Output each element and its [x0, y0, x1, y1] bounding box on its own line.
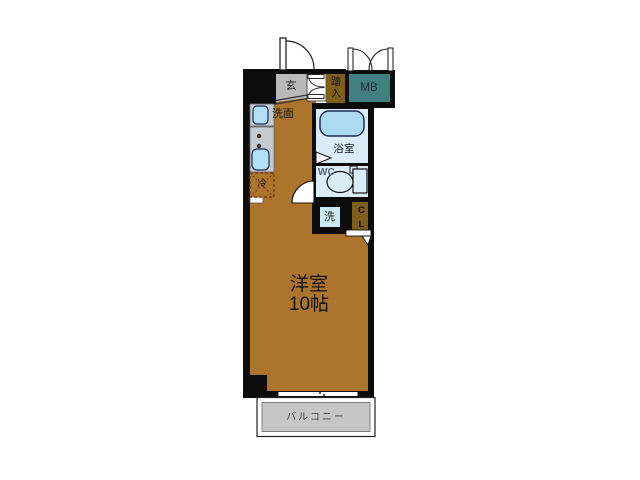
main-room-name: 洋室: [250, 275, 368, 295]
counter-edge: [250, 197, 263, 203]
entry-door-leaf: [280, 38, 286, 70]
wc-label: WC: [318, 167, 335, 179]
entry-door-arc: [286, 41, 314, 69]
refrigerator-label: 冷: [255, 179, 269, 191]
stove-burner-1: [257, 134, 261, 138]
stove-burner-2: [257, 144, 261, 148]
main-room-size: 10帖: [250, 295, 368, 315]
wall-bath-wc-divider: [316, 163, 368, 166]
washstand-label: 洗面: [272, 108, 294, 121]
main-room-label: 洋室 10帖: [250, 275, 368, 315]
kitchen-sink: [252, 149, 269, 170]
inner-door-leaf-top: [308, 75, 324, 79]
bathroom-label: 浴室: [328, 143, 360, 155]
wall-bathroom-top: [312, 103, 374, 109]
floorplan-svg: [0, 0, 640, 480]
bathtub: [320, 111, 364, 136]
fumikomi-label: 踏入: [328, 76, 340, 100]
wall-left: [243, 69, 250, 398]
laundry-label: 洗: [322, 211, 337, 224]
toilet-tank: [353, 169, 367, 193]
balcony-label: バルコニー: [262, 412, 370, 424]
meter-box-label: MB: [352, 82, 386, 95]
balcony-window: [278, 392, 358, 397]
closet-label: CL: [355, 205, 366, 233]
mb-door-leaf-left: [348, 48, 353, 71]
wall-right: [368, 103, 374, 398]
floorplan: 玄 踏入 MB 洗面 冷 浴室 WC 洗 CL 洋室 10帖 バルコニー: [0, 0, 640, 480]
mb-door-leaf-right: [388, 48, 393, 71]
genkan-label: 玄: [277, 80, 305, 93]
washstand-sink: [253, 106, 268, 124]
inner-door-leaf-bottom: [308, 95, 324, 99]
